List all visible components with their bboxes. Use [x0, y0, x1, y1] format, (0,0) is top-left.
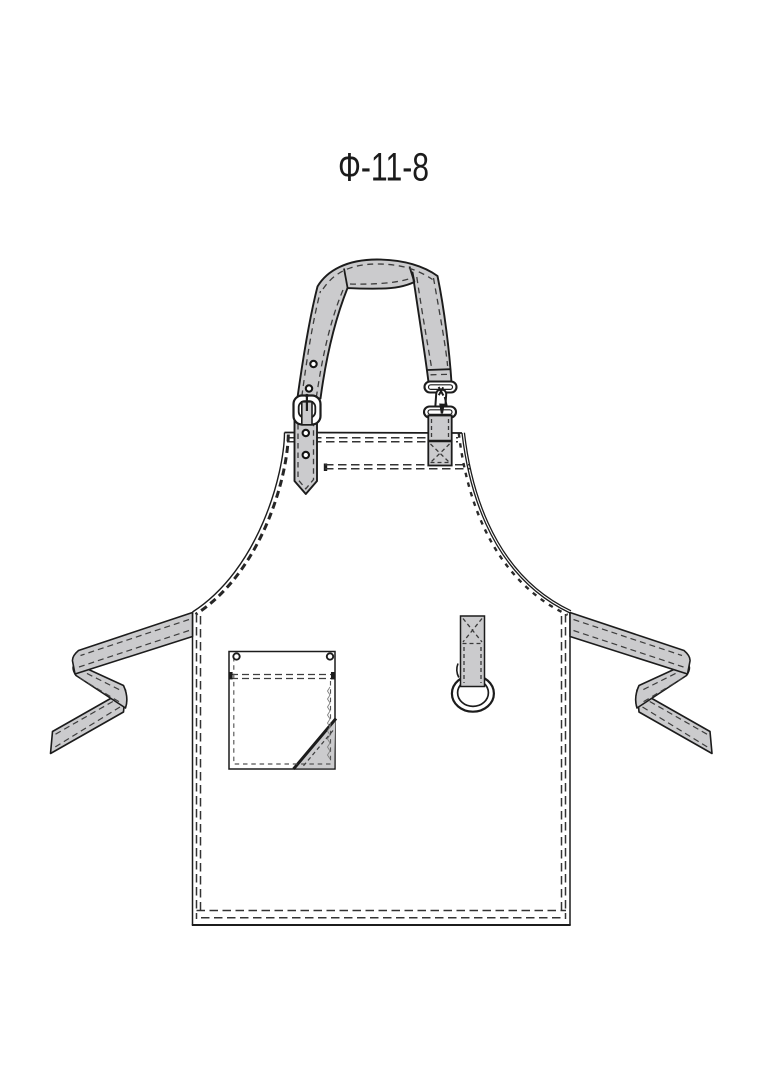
svg-text:Ф-11-8: Ф-11-8 — [338, 146, 429, 190]
